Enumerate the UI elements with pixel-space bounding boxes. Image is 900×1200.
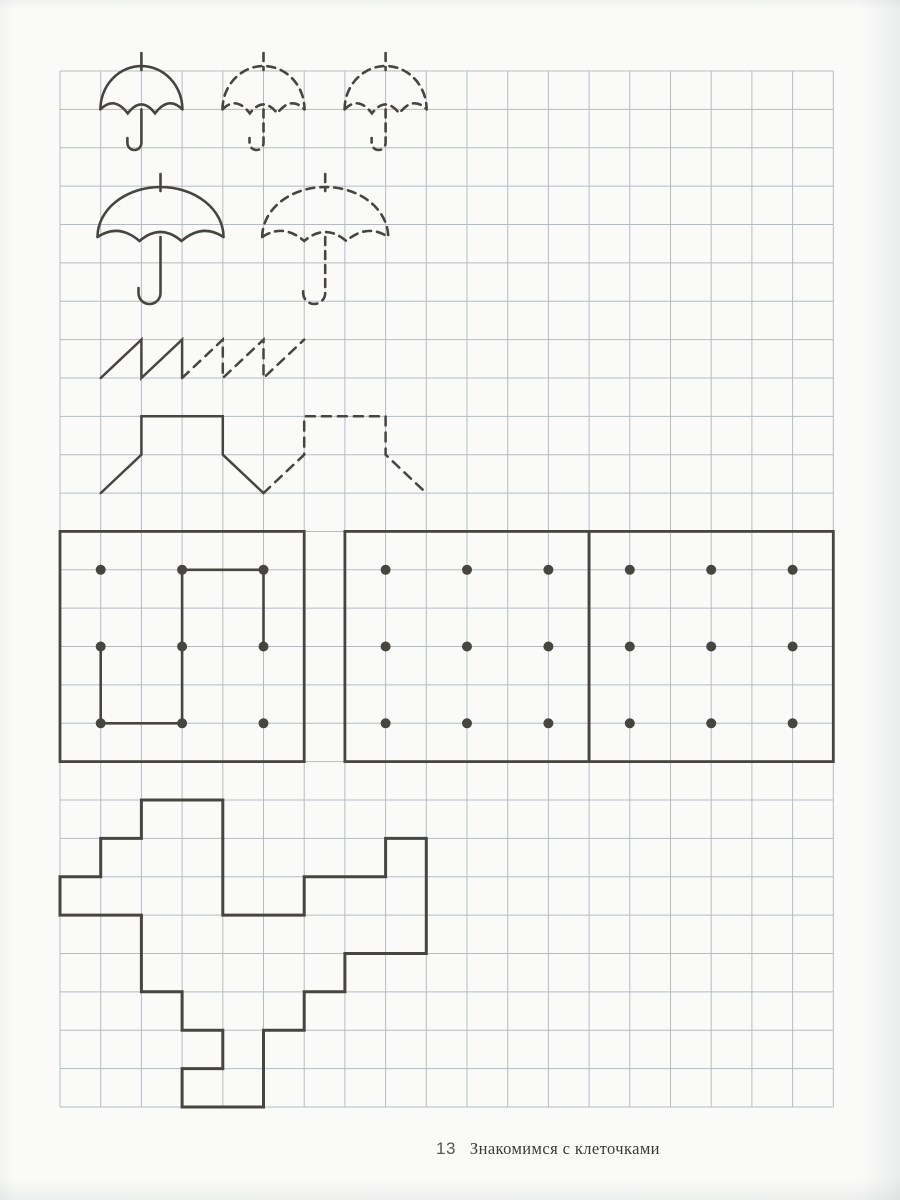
zigzag-traced: [182, 340, 304, 378]
footer-title: Знакомимся с клеточками: [470, 1139, 660, 1159]
dot-box-3: [589, 531, 833, 761]
zigzag-solid: [101, 340, 182, 378]
worksheet-page: 13 Знакомимся с клеточками: [0, 0, 900, 1200]
dot-box-1: [60, 531, 304, 761]
umbrella-large-traced: [262, 174, 388, 304]
umbrella-large-solid: [98, 174, 224, 304]
page-footer: 13 Знакомимся с клеточками: [436, 1139, 660, 1159]
grid-lines: [60, 71, 833, 1107]
page-number: 13: [436, 1139, 456, 1159]
dot-box-2: [345, 531, 589, 761]
worksheet-canvas: [0, 0, 900, 1200]
